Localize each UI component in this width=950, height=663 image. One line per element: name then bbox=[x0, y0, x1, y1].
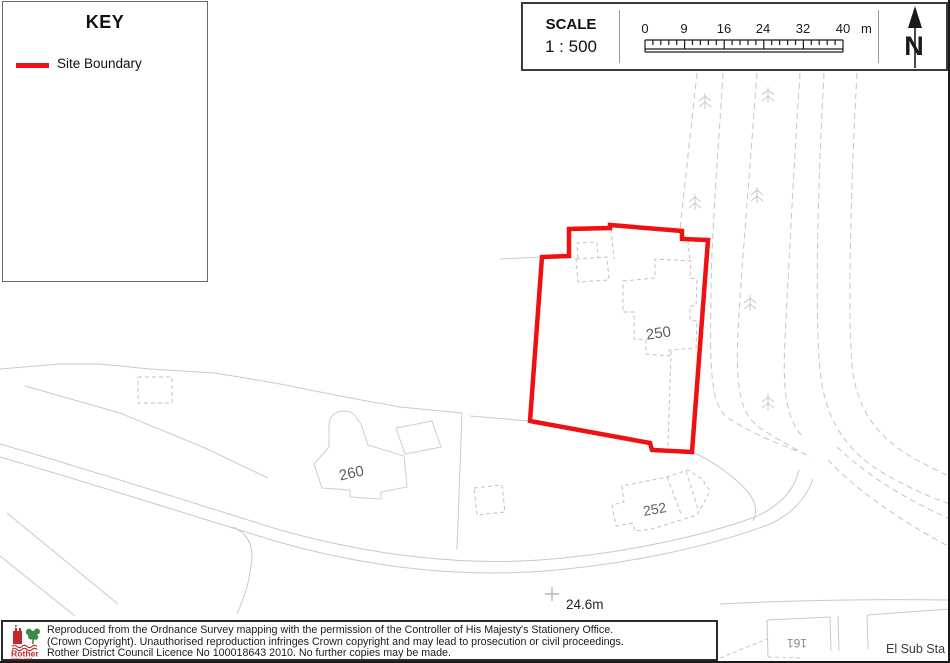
survey-cross bbox=[545, 587, 559, 601]
road-top-right bbox=[680, 73, 950, 547]
field-boundaries bbox=[0, 257, 541, 549]
scale-panel: SCALE 1 : 500 0 9 16 24 32 40 m N bbox=[521, 2, 948, 71]
castle-icon bbox=[13, 625, 22, 644]
building-250-label: 250 bbox=[645, 323, 672, 343]
el-sub-sta-label: El Sub Sta bbox=[886, 642, 945, 656]
copyright-text: Reproduced from the Ordnance Survey mapp… bbox=[47, 625, 624, 660]
tree-icon bbox=[26, 629, 40, 645]
spot-height-label: 24.6m bbox=[566, 597, 604, 612]
north-arrow: N bbox=[878, 4, 950, 73]
copyright-line-3: Rother District Council Licence No 10001… bbox=[47, 648, 624, 660]
north-arrowhead bbox=[908, 6, 922, 28]
tree-symbols bbox=[689, 87, 774, 410]
building-260-outline bbox=[314, 411, 441, 499]
copyright-line-1: Reproduced from the Ordnance Survey mapp… bbox=[47, 625, 624, 637]
building-161-label: 161 bbox=[787, 636, 807, 650]
site-boundary-legend-label: Site Boundary bbox=[57, 56, 142, 71]
logo-subtitle: District Council bbox=[11, 657, 33, 660]
site-boundary-outline bbox=[530, 225, 708, 452]
dashed-buildings bbox=[138, 229, 710, 531]
key-title: KEY bbox=[3, 12, 207, 33]
north-letter: N bbox=[878, 31, 950, 62]
rother-council-logo: Rother District Council bbox=[6, 623, 46, 660]
road-lower bbox=[0, 444, 813, 616]
site-plan-page: 250 260 252 161 El Sub Sta 24.6m KEY Sit… bbox=[0, 0, 950, 663]
site-boundary-swatch bbox=[16, 63, 49, 68]
key-panel: KEY Site Boundary bbox=[2, 1, 208, 282]
copyright-bar: Rother District Council Reproduced from … bbox=[1, 620, 718, 661]
